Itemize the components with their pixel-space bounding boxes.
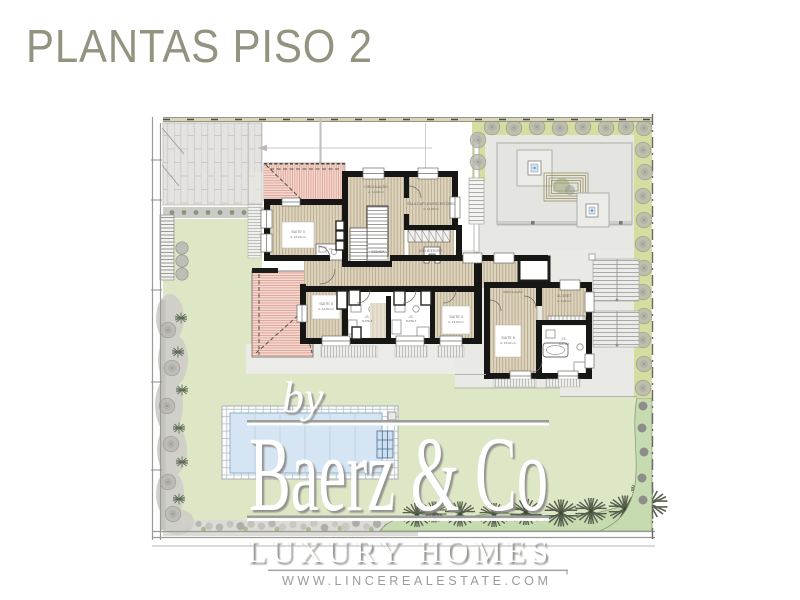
svg-text:SALA DUPLEX/ESCRITÓRIO: SALA DUPLEX/ESCRITÓRIO	[407, 201, 455, 206]
svg-text:SUITE 4: SUITE 4	[406, 319, 417, 323]
svg-text:A: 14,50 m²: A: 14,50 m²	[318, 307, 334, 311]
svg-text:A: 12,00 m²: A: 12,00 m²	[368, 190, 384, 194]
svg-text:A: 6,00 m²: A: 6,00 m²	[557, 299, 571, 303]
svg-text:ESCADA: ESCADA	[371, 250, 385, 254]
svg-text:I.S.: I.S.	[329, 247, 334, 251]
svg-text:SUITE 4: SUITE 4	[449, 315, 463, 319]
svg-text:Baerz & Co: Baerz & Co	[249, 416, 548, 534]
svg-text:SUITE 3: SUITE 3	[291, 230, 305, 234]
svg-text:I.S.: I.S.	[562, 337, 567, 341]
svg-text:SUITE 5: SUITE 5	[319, 302, 333, 306]
svg-text:A: 14,00 m²: A: 14,00 m²	[423, 207, 439, 211]
svg-text:SUITE 6: SUITE 6	[559, 342, 570, 346]
svg-text:A: 15,00 m²: A: 15,00 m²	[448, 320, 464, 324]
svg-text:CLOSET: CLOSET	[557, 294, 572, 298]
svg-text:SUITE 5: SUITE 5	[362, 319, 373, 323]
svg-text:A: 16,00 m²: A: 16,00 m²	[500, 341, 516, 345]
svg-text:ATELIÊ/ESCRIT.: ATELIÊ/ESCRIT.	[419, 248, 443, 253]
svg-text:CIRCULAÇÃO: CIRCULAÇÃO	[503, 289, 523, 294]
svg-text:A: 15,00 m²: A: 15,00 m²	[290, 235, 306, 239]
svg-text:CIRCULAÇÃO: CIRCULAÇÃO	[364, 184, 388, 189]
svg-text:SUITE 6: SUITE 6	[501, 336, 515, 340]
svg-text:by: by	[282, 373, 324, 422]
svg-text:PLANTAS PISO 2: PLANTAS PISO 2	[26, 20, 373, 72]
